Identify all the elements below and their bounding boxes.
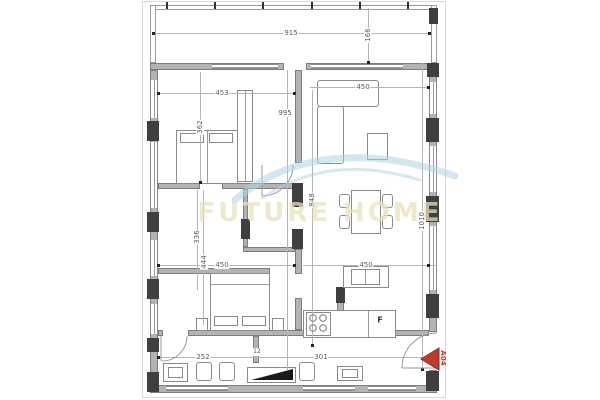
entrance-label: A04 [439, 350, 447, 365]
hall-door-arc [162, 336, 187, 361]
dim-interior-height: 995 [277, 109, 292, 117]
dim-terrace-depth: 166 [364, 27, 372, 42]
dim-kitchen-width: 450 [358, 261, 373, 269]
shower-wedge [251, 369, 293, 380]
floor-plan-canvas: 915 166 453 362 995 450 848 1010 336 444… [0, 0, 600, 400]
dim-room2-width: 450 [214, 261, 229, 269]
dim-hall-c: 301 [313, 353, 328, 361]
fridge-label: F [377, 316, 382, 325]
dim-room2-height-a: 336 [193, 229, 201, 244]
watermark-text: FUTURE HOME [197, 198, 442, 228]
stove-burner [320, 325, 327, 332]
dim-living-width: 450 [355, 83, 370, 91]
dim-bedroom1-width: 453 [214, 89, 229, 97]
dim-hall-b: 12 [252, 348, 262, 356]
entrance-arrow-icon [421, 348, 439, 370]
stove-burner [320, 315, 327, 322]
dim-hall-a: 252 [195, 353, 210, 361]
stove-burner [310, 325, 317, 332]
dim-room2-height-b: 444 [200, 254, 208, 269]
dim-bedroom1-height: 362 [196, 119, 204, 134]
stove-burner [310, 315, 317, 322]
watermark-swoosh-small [262, 169, 420, 198]
dim-terrace-width: 915 [283, 29, 298, 37]
